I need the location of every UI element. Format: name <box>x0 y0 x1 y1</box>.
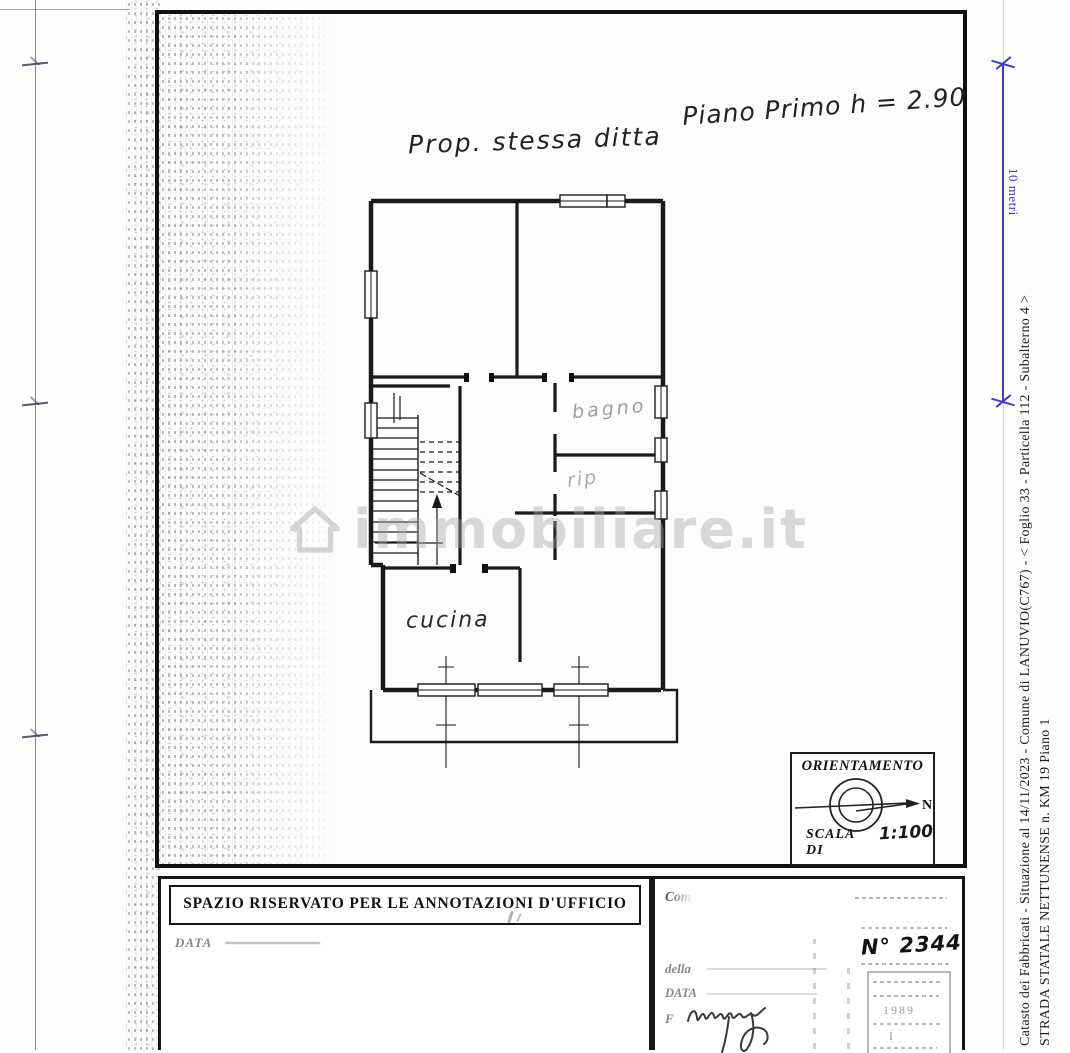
north-label: N <box>922 798 932 813</box>
signature-label: F <box>665 1011 674 1027</box>
side-caption: Catasto dei Fabbricati - Situazione al 1… <box>1016 0 1060 1050</box>
room-label-storage: rip <box>566 466 600 492</box>
office-header: SPAZIO RISERVATO PER LE ANNOTAZIONI D'UF… <box>171 887 639 921</box>
office-date-label: DATA <box>175 935 212 951</box>
stamp-box: 1989 I <box>867 971 951 1053</box>
stamp-mark-year: 1989 <box>883 1003 915 1018</box>
stamp-inner-dash <box>873 1047 937 1049</box>
office-date-line <box>225 942 320 944</box>
scanned-cadastral-plan-page: { "watermark": { "text": "immobiliare.it… <box>0 0 1070 1050</box>
dimension-lines <box>436 656 589 768</box>
stamp-dash <box>861 927 947 929</box>
top-edge-artifact <box>0 9 130 10</box>
orientation-box: ORIENTAMENTO N SCALA DI 1:100 <box>790 752 935 866</box>
side-caption-line1: Catasto dei Fabbricati - Situazione al 1… <box>1016 0 1036 1050</box>
stamp-inner-dash <box>873 1023 941 1025</box>
floor-plan <box>330 180 690 775</box>
della-label: della <box>665 961 691 977</box>
clerk-box: Comp della DATA F N° 2344 1989 I <box>652 876 965 1050</box>
scale-value: 1:100 <box>878 822 933 845</box>
stamp-ghost-marks <box>847 959 850 1049</box>
stair-arrow <box>432 494 442 508</box>
stair-treads <box>373 418 418 553</box>
signature-scribble <box>685 991 817 1053</box>
side-caption-line2: STRADA STATALE NETTUNENSE n. KM 19 Piano… <box>1036 0 1056 1050</box>
room-label-kitchen: cucina <box>406 607 490 633</box>
scale-label: SCALA DI <box>806 827 869 859</box>
left-fold-line <box>35 0 36 1050</box>
stamp-ghost-marks <box>813 939 816 1049</box>
compiled-label: Comp <box>665 889 698 905</box>
orientation-title: ORIENTAMENTO <box>792 758 933 775</box>
office-header-box: SPAZIO RISERVATO PER LE ANNOTAZIONI D'UF… <box>169 885 641 925</box>
blue-scale-bar <box>1002 64 1004 402</box>
stamp-dash <box>861 963 951 965</box>
stamp-inner-dash <box>873 981 943 983</box>
balcony-outline <box>371 690 677 742</box>
stair-direction-line <box>375 393 443 565</box>
della-line <box>707 968 827 970</box>
stamp-dash <box>855 897 947 899</box>
office-annotations-box: SPAZIO RISERVATO PER LE ANNOTAZIONI D'UF… <box>158 876 652 1050</box>
protocol-number: N° 2344 <box>860 930 962 959</box>
stamp-inner-dash <box>873 995 939 997</box>
stamp-mark-i: I <box>889 1029 893 1044</box>
